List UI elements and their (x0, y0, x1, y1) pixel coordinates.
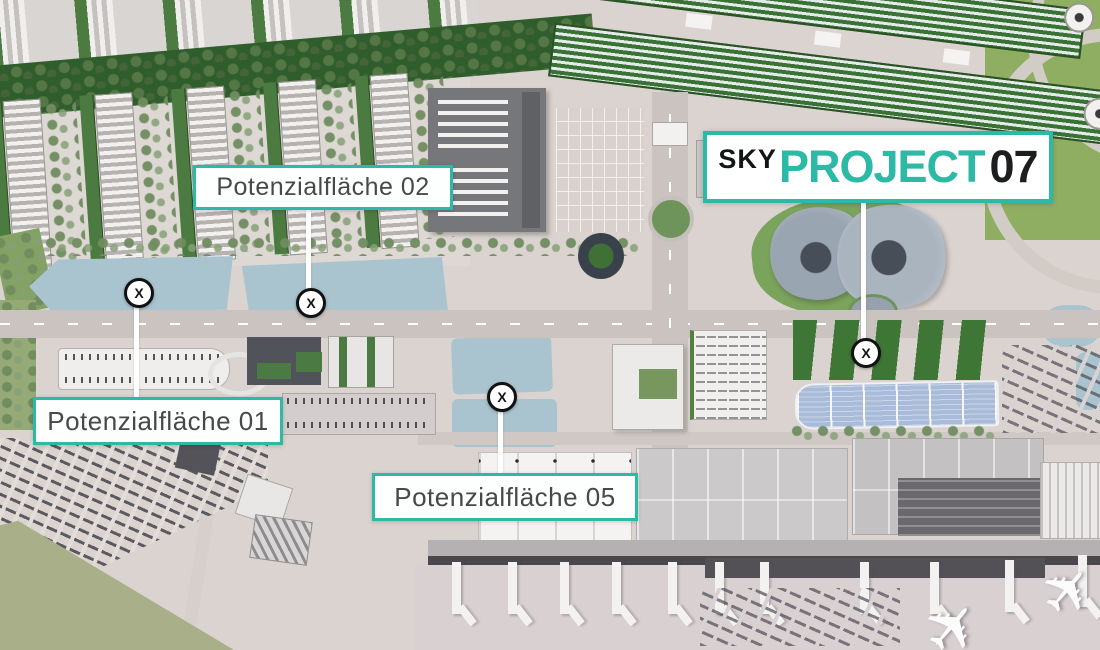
hotel-building (58, 348, 230, 390)
logo-project-text: PROJECT (779, 146, 985, 187)
marker-x-icon: X (306, 296, 315, 310)
marker-x-icon: X (134, 286, 143, 300)
utility-building (652, 122, 688, 146)
marker-area-07[interactable]: X (851, 338, 881, 368)
marker-x-icon: X (861, 346, 870, 360)
marker-x-icon: X (497, 390, 506, 404)
hotel-facade-ticks (65, 354, 221, 360)
solar-roof-hall (795, 380, 1000, 430)
office-block-pair (328, 336, 394, 388)
label-text: Potenzialfläche 01 (47, 406, 268, 437)
cargo-hall-stripes (438, 100, 508, 155)
jet-bridge-pier (668, 562, 677, 614)
jet-bridge-pier (452, 562, 461, 614)
skyproject-logo[interactable]: SKY PROJECT 07 (703, 131, 1053, 203)
marker-area-05[interactable]: X (487, 382, 517, 412)
station-ticks (287, 422, 429, 428)
e-shaped-building (612, 344, 684, 430)
leader-line-02 (306, 200, 311, 300)
marker-area-02[interactable]: X (296, 288, 326, 318)
roundabout-green (648, 196, 694, 242)
storage-tank (578, 233, 624, 279)
terminal-annex (943, 48, 971, 65)
green-roof-small (296, 352, 322, 372)
apron-dark-strip (705, 558, 1045, 578)
e-building-court (639, 369, 677, 399)
parking-deck (690, 330, 767, 420)
label-potenzialflaeche-02[interactable]: Potenzialfläche 02 (193, 165, 453, 210)
jet-bridge-pier (1005, 560, 1014, 612)
paved-plaza (556, 108, 644, 232)
marker-area-01[interactable]: X (124, 278, 154, 308)
tree-row-basins (18, 236, 643, 256)
cargo-hall (428, 88, 546, 232)
leader-line-01 (134, 300, 139, 400)
warehouse-east (1040, 462, 1100, 539)
parking-lot-east (1002, 345, 1100, 433)
parking-lot-south (700, 588, 900, 646)
terminal-annex (685, 13, 713, 30)
cargo-hall-edge (522, 92, 540, 228)
label-potenzialflaeche-01[interactable]: Potenzialfläche 01 (33, 397, 283, 445)
label-text: Potenzialfläche 05 (394, 482, 615, 513)
jet-bridge-pier (560, 562, 569, 614)
skyproject-logo-text: SKY PROJECT 07 (718, 146, 1037, 187)
terminal-hall-gray (636, 448, 848, 550)
leader-line-07 (861, 192, 866, 348)
station-building (282, 393, 436, 435)
jet-bridge-pier (508, 562, 517, 614)
terminal-dark-block (898, 478, 1043, 536)
station-ticks (287, 398, 429, 404)
service-hangar (249, 514, 313, 566)
leader-line-05 (498, 404, 503, 476)
green-roof-patch (257, 363, 291, 379)
green-office-row (793, 320, 993, 380)
hotel-facade-ticks (65, 377, 221, 383)
label-potenzialflaeche-05[interactable]: Potenzialfläche 05 (372, 473, 638, 521)
label-text: Potenzialfläche 02 (216, 173, 429, 202)
site-plan-map: ✈ ✈ X X X X Potenzialfläche 01 Potenzial… (0, 0, 1100, 650)
jet-bridge-pier (612, 562, 621, 614)
logo-number-text: 07 (990, 146, 1038, 187)
logo-sky-text: SKY (718, 146, 777, 173)
terminal-annex (814, 31, 842, 48)
